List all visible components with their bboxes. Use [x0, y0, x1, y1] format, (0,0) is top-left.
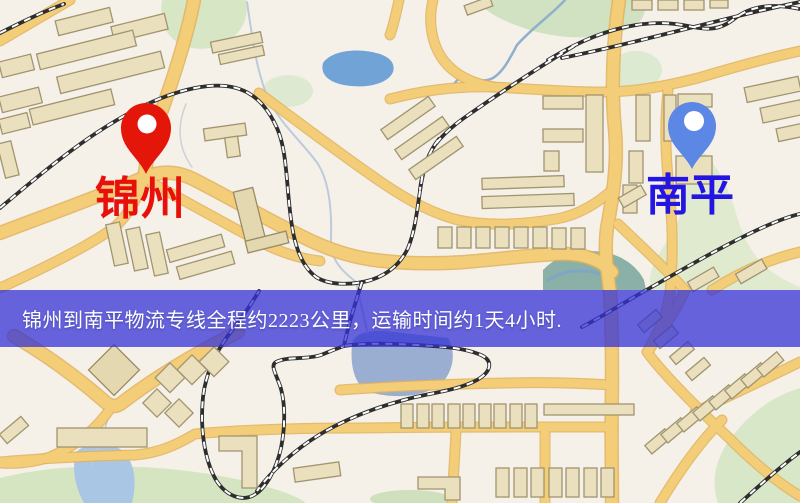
route-info-text: 锦州到南平物流专线全程约2223公里，运输时间约1天4小时. — [0, 304, 562, 333]
building — [636, 95, 650, 141]
building — [401, 404, 413, 428]
building — [57, 428, 147, 447]
building — [632, 0, 652, 10]
map-canvas — [0, 0, 800, 503]
building — [494, 404, 506, 428]
origin-label: 锦州 — [95, 177, 185, 222]
building — [495, 227, 509, 248]
building — [438, 227, 452, 248]
building — [432, 404, 444, 428]
building — [514, 227, 528, 248]
destination-label: 南平 — [646, 174, 734, 218]
route-map: 锦州 南平 锦州到南平物流专线全程约2223公里，运输时间约1天4小时. — [0, 0, 800, 503]
building — [514, 468, 527, 497]
building — [479, 404, 491, 428]
building — [584, 468, 597, 497]
building — [448, 404, 460, 428]
building — [543, 129, 583, 142]
building — [510, 404, 522, 428]
building — [531, 468, 544, 497]
building — [629, 151, 643, 183]
lake — [322, 50, 393, 86]
building — [543, 96, 583, 109]
building — [482, 193, 574, 208]
route-info-banner: 锦州到南平物流专线全程约2223公里，运输时间约1天4小时. — [0, 290, 800, 347]
building — [476, 227, 490, 248]
building — [457, 227, 471, 248]
origin-pin-hole — [138, 115, 157, 134]
building — [710, 0, 728, 8]
building — [571, 228, 585, 249]
building — [417, 404, 429, 428]
building — [533, 227, 547, 248]
building — [549, 468, 562, 497]
building — [586, 95, 603, 172]
building — [658, 0, 678, 10]
building — [496, 468, 509, 497]
building — [684, 0, 704, 10]
destination-pin-hole — [684, 111, 704, 131]
building — [544, 404, 634, 415]
building — [525, 404, 537, 428]
building — [482, 176, 564, 190]
building — [566, 468, 579, 497]
building — [225, 136, 241, 158]
building — [544, 151, 559, 171]
building — [601, 468, 614, 497]
building — [552, 228, 566, 249]
building — [463, 404, 475, 428]
